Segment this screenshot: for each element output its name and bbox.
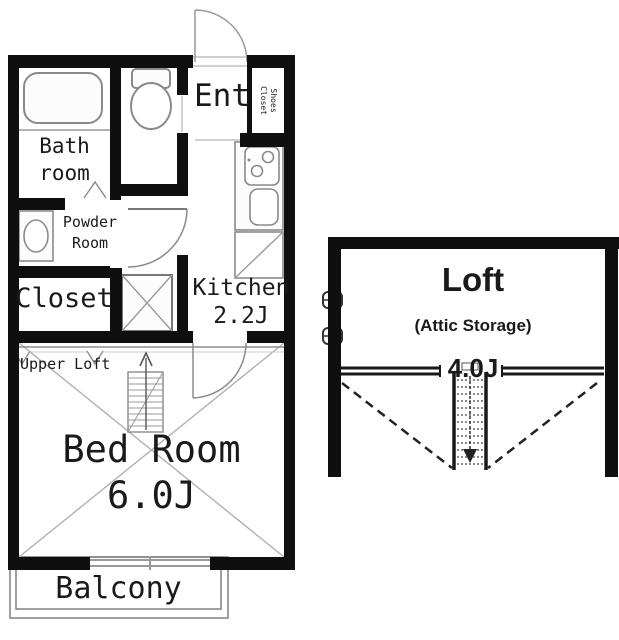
toilet-icon: [131, 69, 171, 129]
loft-subtitle: (Attic Storage): [341, 316, 605, 336]
ladder-down-arrow-icon: [463, 449, 477, 463]
washer-space-icon: [122, 275, 172, 331]
bathtub-icon: [19, 73, 110, 130]
refrigerator-space-icon: [235, 232, 283, 278]
powder-room-label: PowderRoom: [50, 212, 130, 254]
sliding-door-icon: [90, 556, 210, 570]
closet-label: Closet: [14, 283, 114, 314]
floorplan-canvas: Bathroom Ent ShoesCloset PowderRoom Clos…: [0, 0, 619, 640]
bedroom-door-arc-icon: [193, 343, 246, 398]
entrance-label: Ent: [194, 79, 248, 113]
kitchen-counter-icon: [235, 142, 283, 230]
kitchen-sink-icon: [250, 189, 278, 225]
stove-icon: [245, 147, 279, 185]
loft-title: Loft: [341, 262, 605, 298]
entrance-door-arc-icon: [195, 10, 247, 62]
bedroom-label: Bed Room6.0J: [19, 427, 284, 520]
washbasin-icon: [19, 211, 53, 261]
loft-label: Loft (Attic Storage) 4.0J: [341, 244, 605, 402]
kitchen-label: Kitchen2.2J: [190, 275, 292, 330]
shoes-closet-label: ShoesCloset: [252, 70, 285, 132]
balcony-label: Balcony: [16, 571, 221, 606]
loft-size: 4.0J: [341, 354, 605, 384]
bathroom-label: Bathroom: [19, 133, 110, 188]
upper-loft-label: Upper Loft: [20, 355, 140, 373]
